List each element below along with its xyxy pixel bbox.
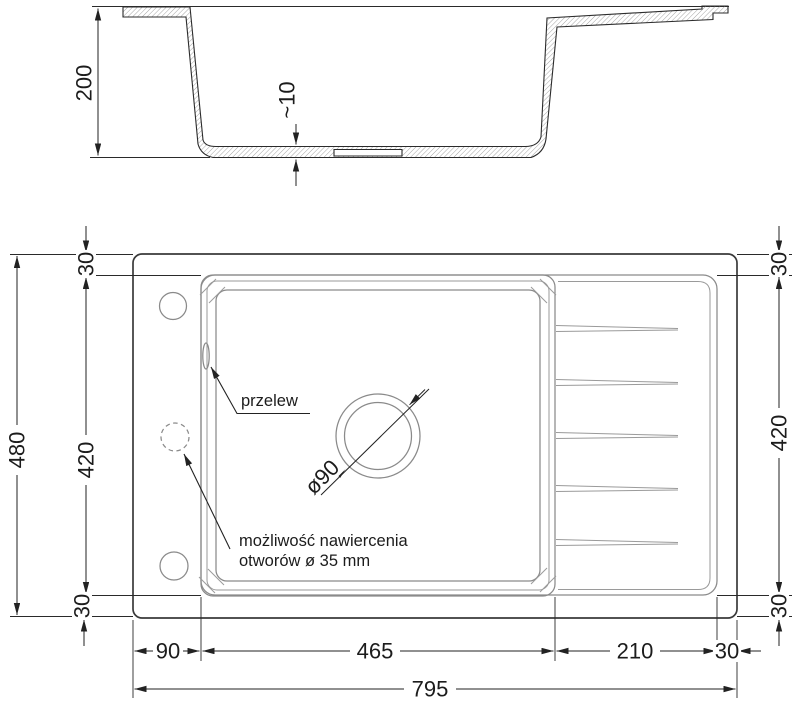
dim-label-depth: 200 bbox=[72, 65, 97, 102]
thickness-dimension: ~10 bbox=[275, 81, 300, 118]
tap-ledge-width-dimension: 90 bbox=[153, 639, 183, 664]
sink-technical-drawing: 200 ~10 bbox=[0, 0, 800, 713]
groove bbox=[556, 437, 678, 439]
drain-circle-inner bbox=[345, 403, 412, 470]
top-offset-left-dimension: 30 bbox=[74, 250, 99, 278]
drain-diameter-dimension: ø90 bbox=[295, 450, 348, 503]
tap-hole-top bbox=[160, 293, 187, 320]
top-offset-right-dimension: 30 bbox=[767, 250, 792, 278]
drill-note-line2: otworów ø 35 mm bbox=[239, 552, 370, 570]
dim-label-inner-height-right: 420 bbox=[767, 415, 792, 452]
dim-label-total-height: 480 bbox=[5, 432, 30, 469]
groove bbox=[556, 540, 678, 543]
inner-height-left-dimension: 420 bbox=[74, 435, 99, 485]
drain-circle-outer bbox=[336, 394, 420, 478]
groove bbox=[556, 330, 678, 332]
groove bbox=[556, 326, 678, 329]
bottom-offset-right-dimension: 30 bbox=[767, 592, 792, 620]
dim-label-bottom-offset-left: 30 bbox=[70, 594, 95, 618]
right-offset-dimension: 30 bbox=[713, 639, 741, 664]
cross-section-view: 200 ~10 bbox=[72, 6, 730, 186]
dim-label-drainer-width: 210 bbox=[617, 639, 654, 664]
groove bbox=[556, 486, 678, 489]
groove bbox=[556, 384, 678, 386]
inner-height-right-dimension: 420 bbox=[767, 408, 792, 458]
overflow-label: przelew bbox=[241, 392, 298, 410]
plan-outer-edge bbox=[133, 254, 737, 618]
groove bbox=[556, 380, 678, 383]
overflow-slot bbox=[203, 343, 209, 369]
dim-label-floor-thickness: ~10 bbox=[275, 81, 300, 118]
total-width-dimension: 795 bbox=[404, 677, 456, 702]
sink-profile-section bbox=[123, 6, 728, 158]
dim-label-total-width: 795 bbox=[412, 677, 449, 702]
tap-hole-bottom bbox=[160, 552, 188, 580]
drain-arrow-ne bbox=[410, 390, 426, 405]
dim-label-top-offset-left: 30 bbox=[74, 252, 99, 276]
groove bbox=[556, 433, 678, 436]
drainer-grooves bbox=[556, 326, 678, 546]
total-height-dimension: 480 bbox=[5, 425, 30, 475]
dim-label-inner-height-left: 420 bbox=[74, 442, 99, 479]
groove bbox=[556, 544, 678, 546]
bottom-offset-left-dimension: 30 bbox=[70, 592, 95, 620]
drainer-width-dimension: 210 bbox=[610, 639, 660, 664]
sink-technical-drawing-page: 200 ~10 bbox=[0, 0, 800, 713]
drill-note-line1: możliwość nawiercenia bbox=[239, 532, 409, 550]
groove bbox=[556, 490, 678, 492]
plan-view: ø90 przelew możliwość nawiercenia otworó… bbox=[5, 226, 793, 702]
tap-hole-optional-dashed bbox=[161, 423, 189, 451]
dim-label-right-offset: 30 bbox=[715, 639, 739, 664]
dim-label-tap-ledge-width: 90 bbox=[156, 639, 180, 664]
depth-dimension: 200 bbox=[72, 65, 97, 102]
dim-label-bowl-width: 465 bbox=[357, 639, 394, 664]
dim-label-top-offset-right: 30 bbox=[767, 252, 792, 276]
bowl-width-dimension: 465 bbox=[350, 639, 400, 664]
dim-label-bottom-offset-right: 30 bbox=[767, 594, 792, 618]
